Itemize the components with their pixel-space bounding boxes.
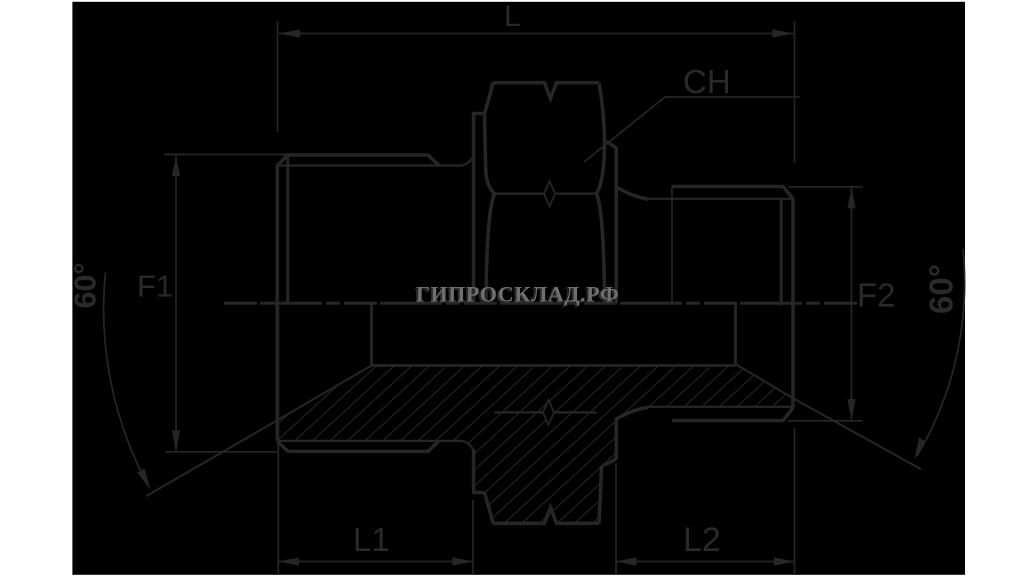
svg-text:L2: L2 — [683, 521, 721, 559]
svg-text:60°: 60° — [69, 262, 103, 308]
svg-text:ГИПРОСКЛАД.РФ: ГИПРОСКЛАД.РФ — [416, 282, 619, 307]
svg-text:60°: 60° — [923, 264, 960, 314]
svg-text:F2: F2 — [857, 277, 896, 314]
svg-text:L: L — [504, 0, 521, 33]
svg-text:L1: L1 — [353, 521, 390, 558]
svg-text:CH: CH — [683, 63, 731, 100]
svg-text:F1: F1 — [137, 269, 173, 304]
